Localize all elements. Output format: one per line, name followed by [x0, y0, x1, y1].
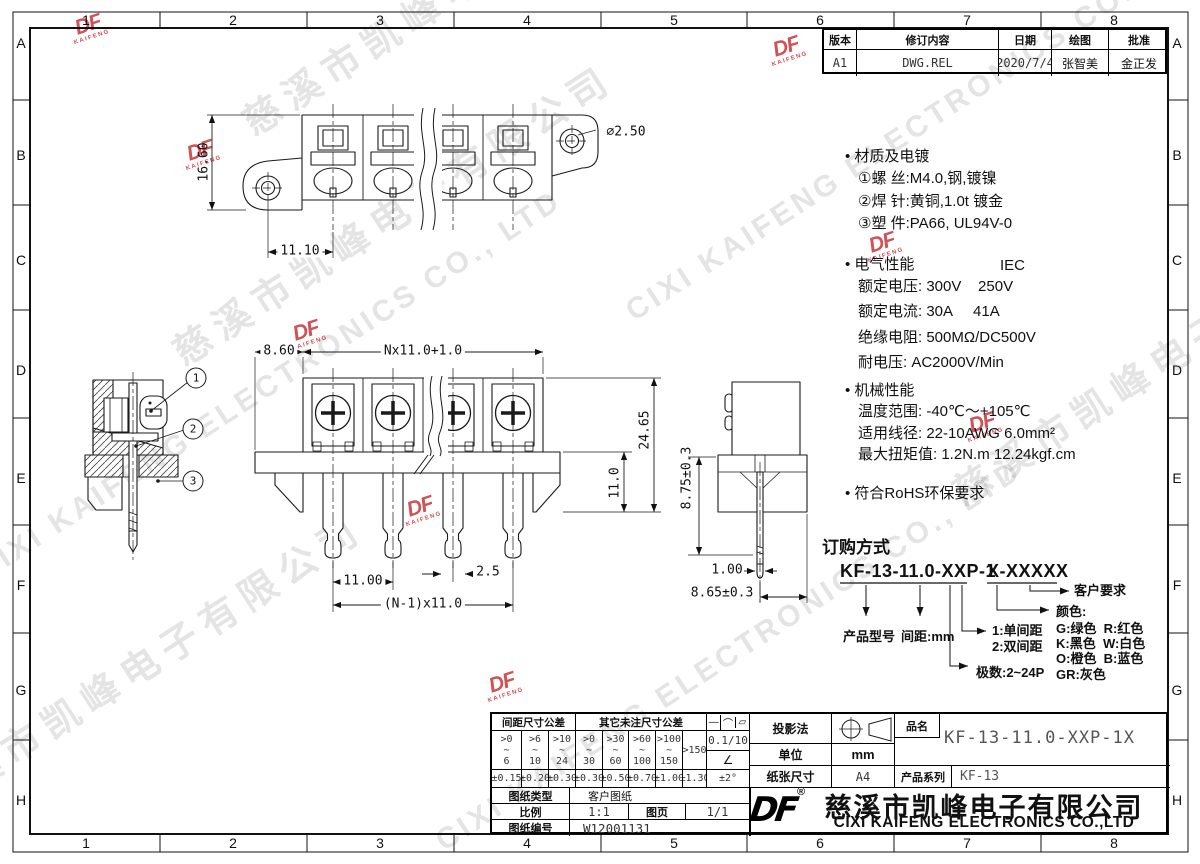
scale-value: 1:1 — [570, 804, 629, 820]
zone-col: 7 — [963, 12, 971, 28]
product-name-label: 品名 — [895, 714, 940, 738]
series-label: 产品系列 — [895, 766, 952, 788]
tol-value: ±1.00 — [656, 770, 683, 788]
drawing-sheet: 慈溪市凯峰电子有限公司 CIXI KAIFENG ELECTRONICS CO.… — [0, 0, 1200, 864]
zone-row: F — [17, 577, 26, 593]
series-value: KF-13 — [952, 766, 1170, 788]
zone-row: A — [16, 35, 25, 51]
top-view — [207, 104, 598, 258]
projection-symbol-cell — [832, 714, 895, 744]
front-view — [255, 352, 661, 612]
zone-row: D — [1172, 362, 1182, 378]
tol-range: >60 ~ 100 — [629, 731, 656, 770]
dim-label: 8.60 — [260, 345, 297, 358]
ordering-double: 2:双间距 — [992, 640, 1043, 655]
dim-label: 2.5 — [476, 566, 499, 579]
zone-col: 5 — [670, 835, 678, 851]
angle-icon: ∠ — [707, 751, 750, 770]
revision-header: 绘图 — [1052, 30, 1109, 50]
zone-col: 6 — [816, 12, 824, 28]
spec-line: 耐电压: AC2000V/Min — [858, 355, 1004, 372]
arc-icon: ⌒ — [720, 715, 734, 730]
company-name-en: CIXI KAIFENG ELECTRONICS CO.,LTD — [805, 814, 1163, 832]
callout-number: 1 — [193, 372, 200, 385]
zone-row: E — [16, 470, 25, 486]
tol-flatness: 0.1/10 — [707, 731, 750, 751]
zone-col: 8 — [1110, 835, 1118, 851]
revision-cell: 张智美 — [1052, 50, 1109, 76]
zone-row: F — [1173, 577, 1182, 593]
ordering-poles: 极数:2~24P — [976, 666, 1044, 681]
revision-table: 版本 修订内容 日期 绘图 批准 A1 DWG.REL 2020/7/4 张智美… — [822, 28, 1167, 74]
drawing-type-value: 客户图纸 — [570, 788, 750, 804]
zone-col: 7 — [963, 835, 971, 851]
tol-value: ±0.15 — [492, 770, 522, 788]
revision-header: 批准 — [1109, 30, 1169, 50]
ordering-color: K:黑色 W:白色 — [1056, 637, 1145, 652]
side-view — [688, 382, 807, 603]
page-value: 1/1 — [686, 804, 750, 820]
registered-mark: ® — [797, 786, 805, 798]
spec-rohs: • 符合RoHS环保要求 — [845, 486, 984, 503]
ordering-color: G:绿色 R:红色 — [1056, 622, 1143, 637]
zone-col: 3 — [376, 12, 384, 28]
paper-size-value: A4 — [832, 766, 895, 788]
tol-range: >30 ~ 60 — [603, 731, 629, 770]
section-view — [85, 368, 206, 560]
ordering-color-title: 颜色: — [1056, 605, 1086, 620]
ordering-code-suffix: X-XXXXX — [987, 561, 1069, 582]
zone-col: 1 — [82, 835, 90, 851]
drawing-number-label: 图纸编号 — [492, 820, 570, 836]
zone-row: H — [16, 792, 26, 808]
tol-other-header: 其它未注尺寸公差 — [576, 714, 707, 731]
drawing-number-value: W12001131 — [570, 820, 750, 836]
spec-electrical-title: • 电气性能 — [845, 257, 914, 274]
drawing-type-label: 图纸类型 — [492, 788, 570, 804]
callout-number: 2 — [190, 423, 197, 436]
revision-cell: 2020/7/4 — [999, 50, 1052, 76]
zone-col: 2 — [229, 12, 237, 28]
zone-col: 4 — [523, 835, 531, 851]
zone-row: B — [16, 147, 25, 163]
tol-pitch-header: 间距尺寸公差 — [492, 714, 576, 731]
tol-value: ±0.50 — [603, 770, 629, 788]
zone-col: 1 — [82, 12, 90, 28]
tol-value: ±1.30 — [683, 770, 707, 788]
tol-range: >100 ~ 150 — [656, 731, 683, 770]
tol-angle-value: ±2° — [707, 770, 750, 788]
dim-label: 11.10 — [277, 245, 322, 258]
dim-label: 11.0 — [609, 467, 622, 498]
zone-col: 4 — [523, 12, 531, 28]
ordering-color: O:橙色 B:蓝色 — [1056, 652, 1143, 667]
zone-row: C — [16, 252, 26, 268]
scale-label: 比例 — [492, 804, 570, 820]
ordering-pitch: 间距:mm — [901, 630, 954, 645]
spec-line: 温度范围: -40℃～+105℃ — [858, 404, 1031, 421]
unit-value: mm — [832, 744, 895, 766]
revision-cell: A1 — [824, 50, 857, 76]
spec-line: ①螺 丝:M4.0,钢,镀镍 — [858, 171, 996, 188]
revision-header: 日期 — [999, 30, 1052, 50]
spec-line: 绝缘电阻: 500MΩ/DC500V — [858, 330, 1036, 347]
tol-range-150: >150 — [683, 731, 707, 770]
flatness-icon: ▱ — [735, 717, 749, 728]
ordering-product-model: 产品型号 — [843, 630, 895, 645]
dim-label: ⌀2.50 — [606, 126, 645, 139]
tol-range: >0 ~ 6 — [492, 731, 522, 770]
zone-row: B — [1172, 147, 1181, 163]
dim-label: (N-1)x11.0 — [381, 598, 465, 611]
ordering-single: 1:单间距 — [992, 624, 1043, 639]
projection-label: 投影法 — [750, 714, 832, 744]
revision-header: 修订内容 — [857, 30, 999, 50]
dim-label: 8.65±0.3 — [691, 587, 754, 600]
spec-line: 额定电流: 30A 41A — [858, 304, 1000, 321]
tol-value: ±0.70 — [629, 770, 656, 788]
company-logo-icon: DF — [747, 790, 798, 830]
spec-line: ②焊 针:黄铜,1.0t 镀金 — [858, 194, 1003, 211]
tol-value: ±0.30 — [576, 770, 603, 788]
zone-row: H — [1172, 792, 1182, 808]
dim-label: 11.00 — [340, 575, 385, 588]
zone-col: 6 — [816, 835, 824, 851]
zone-row: G — [16, 682, 27, 698]
spec-material-title: • 材质及电镀 — [845, 149, 929, 166]
dim-label: Nx11.0+1.0 — [381, 345, 465, 358]
tol-range: >0 ~ 30 — [576, 731, 603, 770]
zone-col: 3 — [376, 835, 384, 851]
ordering-customer: 客户要求 — [1074, 584, 1126, 599]
zone-row: C — [1172, 252, 1182, 268]
spec-line: ③塑 件:PA66, UL94V-0 — [858, 216, 1012, 233]
spec-line: 最大扭矩值: 1.2N.m 12.24kgf.cm — [858, 447, 1076, 464]
dim-label: 1.00 — [711, 564, 742, 577]
zone-row: D — [16, 362, 26, 378]
ordering-code-main: KF-13-11.0-XXP-1 — [840, 561, 996, 582]
ordering-title: 订购方式 — [822, 538, 890, 558]
dim-label: 24.65 — [639, 410, 652, 449]
revision-header: 版本 — [824, 30, 857, 50]
dim-label: 8.75±0.3 — [681, 447, 694, 510]
paper-size-label: 纸张尺寸 — [750, 766, 832, 788]
spec-line: 适用线径: 22-10AWG 6.0mm² — [858, 426, 1055, 443]
tol-value: ±0.20 — [522, 770, 549, 788]
unit-label: 单位 — [750, 744, 832, 766]
spec-line: 额定电压: 300V 250V — [858, 279, 1013, 296]
ordering-color: GR:灰色 — [1056, 668, 1106, 683]
zone-row: G — [1172, 682, 1183, 698]
revision-cell: DWG.REL — [857, 50, 999, 76]
straightness-icon: — — [707, 717, 720, 728]
zone-col: 2 — [229, 835, 237, 851]
spec-mechanical-title: • 机械性能 — [845, 383, 914, 400]
tol-value: ±0.30 — [549, 770, 576, 788]
dim-label: 16.60 — [198, 142, 211, 181]
zone-row: E — [1172, 470, 1181, 486]
spec-iec: IEC — [1000, 258, 1025, 275]
tol-range: >6 ~ 10 — [522, 731, 549, 770]
tol-range: >10 ~ 24 — [549, 731, 576, 770]
zone-col: 8 — [1110, 12, 1118, 28]
zone-col: 5 — [670, 12, 678, 28]
tol-symbols-header: —⌒▱ — [707, 714, 750, 731]
zone-row: A — [1172, 35, 1181, 51]
callout-number: 3 — [190, 475, 197, 488]
product-name-value: KF-13-11.0-XXP-1X — [944, 728, 1166, 748]
page-label: 图页 — [629, 804, 686, 820]
revision-cell: 金正发 — [1109, 50, 1169, 76]
